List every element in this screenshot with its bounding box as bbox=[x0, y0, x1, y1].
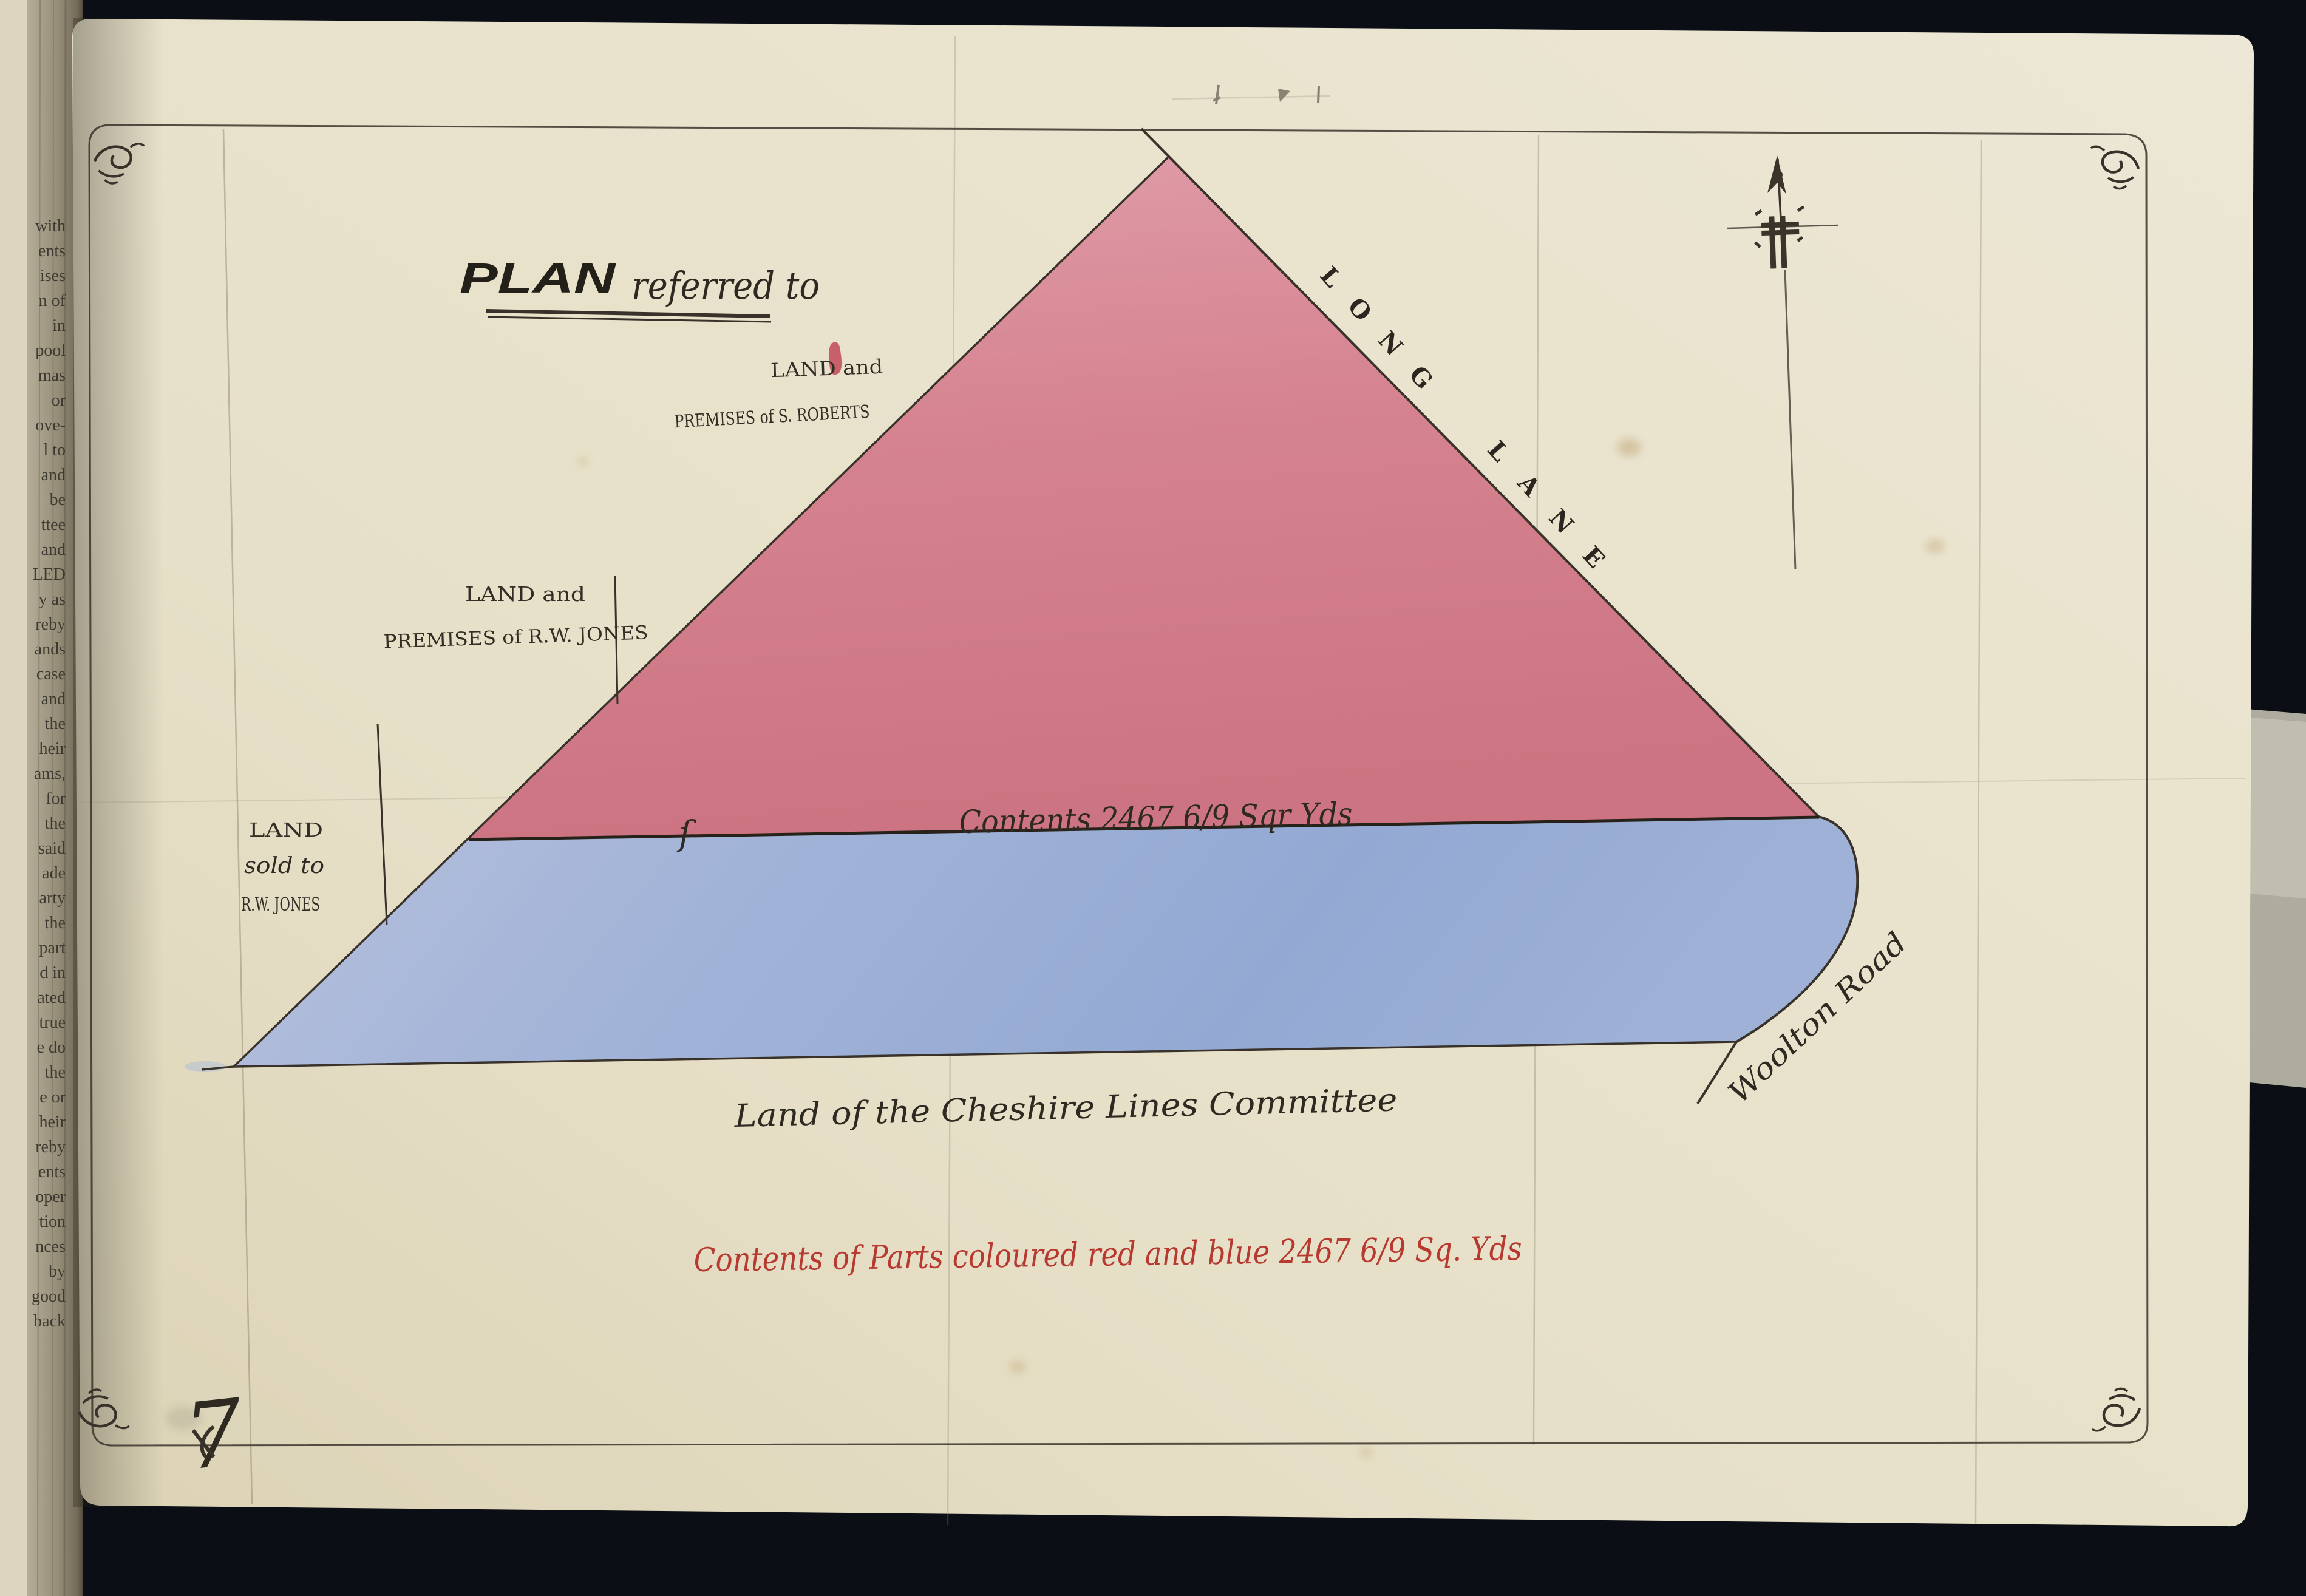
title-word-referred-to: referred to bbox=[631, 263, 820, 308]
left-page-text-fragment: ands bbox=[0, 637, 68, 662]
left-page-text-fragment: and bbox=[0, 463, 68, 487]
mark-seven: 7 bbox=[180, 1380, 249, 1491]
left-page-text-fragment: pool bbox=[0, 338, 68, 363]
sheet-left-shadow bbox=[73, 18, 164, 1507]
left-page-text-fragment: the bbox=[0, 1060, 68, 1085]
plan-scan: PLAN referred to LAND and PREMISES of S.… bbox=[0, 0, 2306, 1596]
left-page-text-fragment: l to bbox=[0, 438, 68, 463]
left-page-text-fragment: tion bbox=[0, 1209, 68, 1234]
left-page-text-fragment: nces bbox=[0, 1234, 68, 1259]
left-page-text-fragment: LED bbox=[0, 562, 68, 587]
left-page-text-fragment: said bbox=[0, 836, 68, 861]
left-page-text-fragment: back bbox=[0, 1309, 68, 1334]
left-page-text-column: withentsisesn ofinpoolmasorove-l toandbe… bbox=[0, 214, 68, 1334]
scanned-book-opening: PLAN referred to LAND and PREMISES of S.… bbox=[0, 0, 2306, 1596]
jones-sold-line1: LAND bbox=[249, 818, 323, 841]
left-page-text-fragment: and bbox=[0, 687, 68, 711]
left-page-text-fragment: oper bbox=[0, 1184, 68, 1209]
left-page-text-fragment: part bbox=[0, 936, 68, 960]
left-page-text-fragment: true bbox=[0, 1010, 68, 1035]
left-page-text-fragment: reby bbox=[0, 612, 68, 637]
roberts-line1: LAND and bbox=[770, 355, 883, 382]
left-page-text-fragment: the bbox=[0, 711, 68, 736]
left-page-text-fragment: for bbox=[0, 786, 68, 811]
left-page-text-fragment: ents bbox=[0, 239, 68, 263]
left-page-text-fragment: or bbox=[0, 388, 68, 413]
north-arrow-dot bbox=[1774, 171, 1783, 179]
left-page-text-fragment: heir bbox=[0, 1110, 68, 1135]
left-page-text-fragment: e do bbox=[0, 1035, 68, 1060]
left-page-text-fragment: by bbox=[0, 1259, 68, 1284]
left-page-text-fragment: the bbox=[0, 811, 68, 836]
jones-premises-line1: LAND and bbox=[465, 582, 585, 606]
left-page-text-fragment: case bbox=[0, 662, 68, 687]
title-word-plan: PLAN bbox=[460, 254, 616, 302]
left-page-text-fragment: arty bbox=[0, 886, 68, 911]
left-page-text-fragment: reby bbox=[0, 1135, 68, 1160]
jones-sold-line3: R.W. JONES bbox=[241, 894, 320, 915]
left-page-text-fragment: e or bbox=[0, 1085, 68, 1110]
left-page-text-fragment: ents bbox=[0, 1160, 68, 1184]
left-page-text-fragment: mas bbox=[0, 363, 68, 388]
left-page-text-fragment: be bbox=[0, 487, 68, 512]
left-page-text-fragment: ttee bbox=[0, 512, 68, 537]
left-page-text-fragment: d in bbox=[0, 960, 68, 985]
left-page-text-fragment: with bbox=[0, 214, 68, 239]
bookmark-tab bbox=[2243, 709, 2306, 1088]
left-page-text-fragment: ams, bbox=[0, 761, 68, 786]
left-page-text-fragment: good bbox=[0, 1284, 68, 1309]
left-page-text-fragment: in bbox=[0, 313, 68, 338]
label-jones-sold: LAND sold to R.W. JONES bbox=[241, 818, 324, 915]
left-page-text-fragment: and bbox=[0, 537, 68, 562]
blue-parcel bbox=[234, 817, 1857, 1067]
jones-sold-line2: sold to bbox=[244, 854, 324, 878]
left-page-text-fragment: ade bbox=[0, 861, 68, 886]
left-page-text-fragment: heir bbox=[0, 736, 68, 761]
left-page-text-fragment: y as bbox=[0, 587, 68, 612]
left-page-text-fragment: the bbox=[0, 911, 68, 936]
left-page-text-fragment: ises bbox=[0, 263, 68, 288]
left-page-text-fragment: ated bbox=[0, 985, 68, 1010]
blue-wash-tail bbox=[185, 1061, 226, 1072]
left-page-text-fragment: n of bbox=[0, 288, 68, 313]
left-page-text-fragment: ove- bbox=[0, 413, 68, 438]
